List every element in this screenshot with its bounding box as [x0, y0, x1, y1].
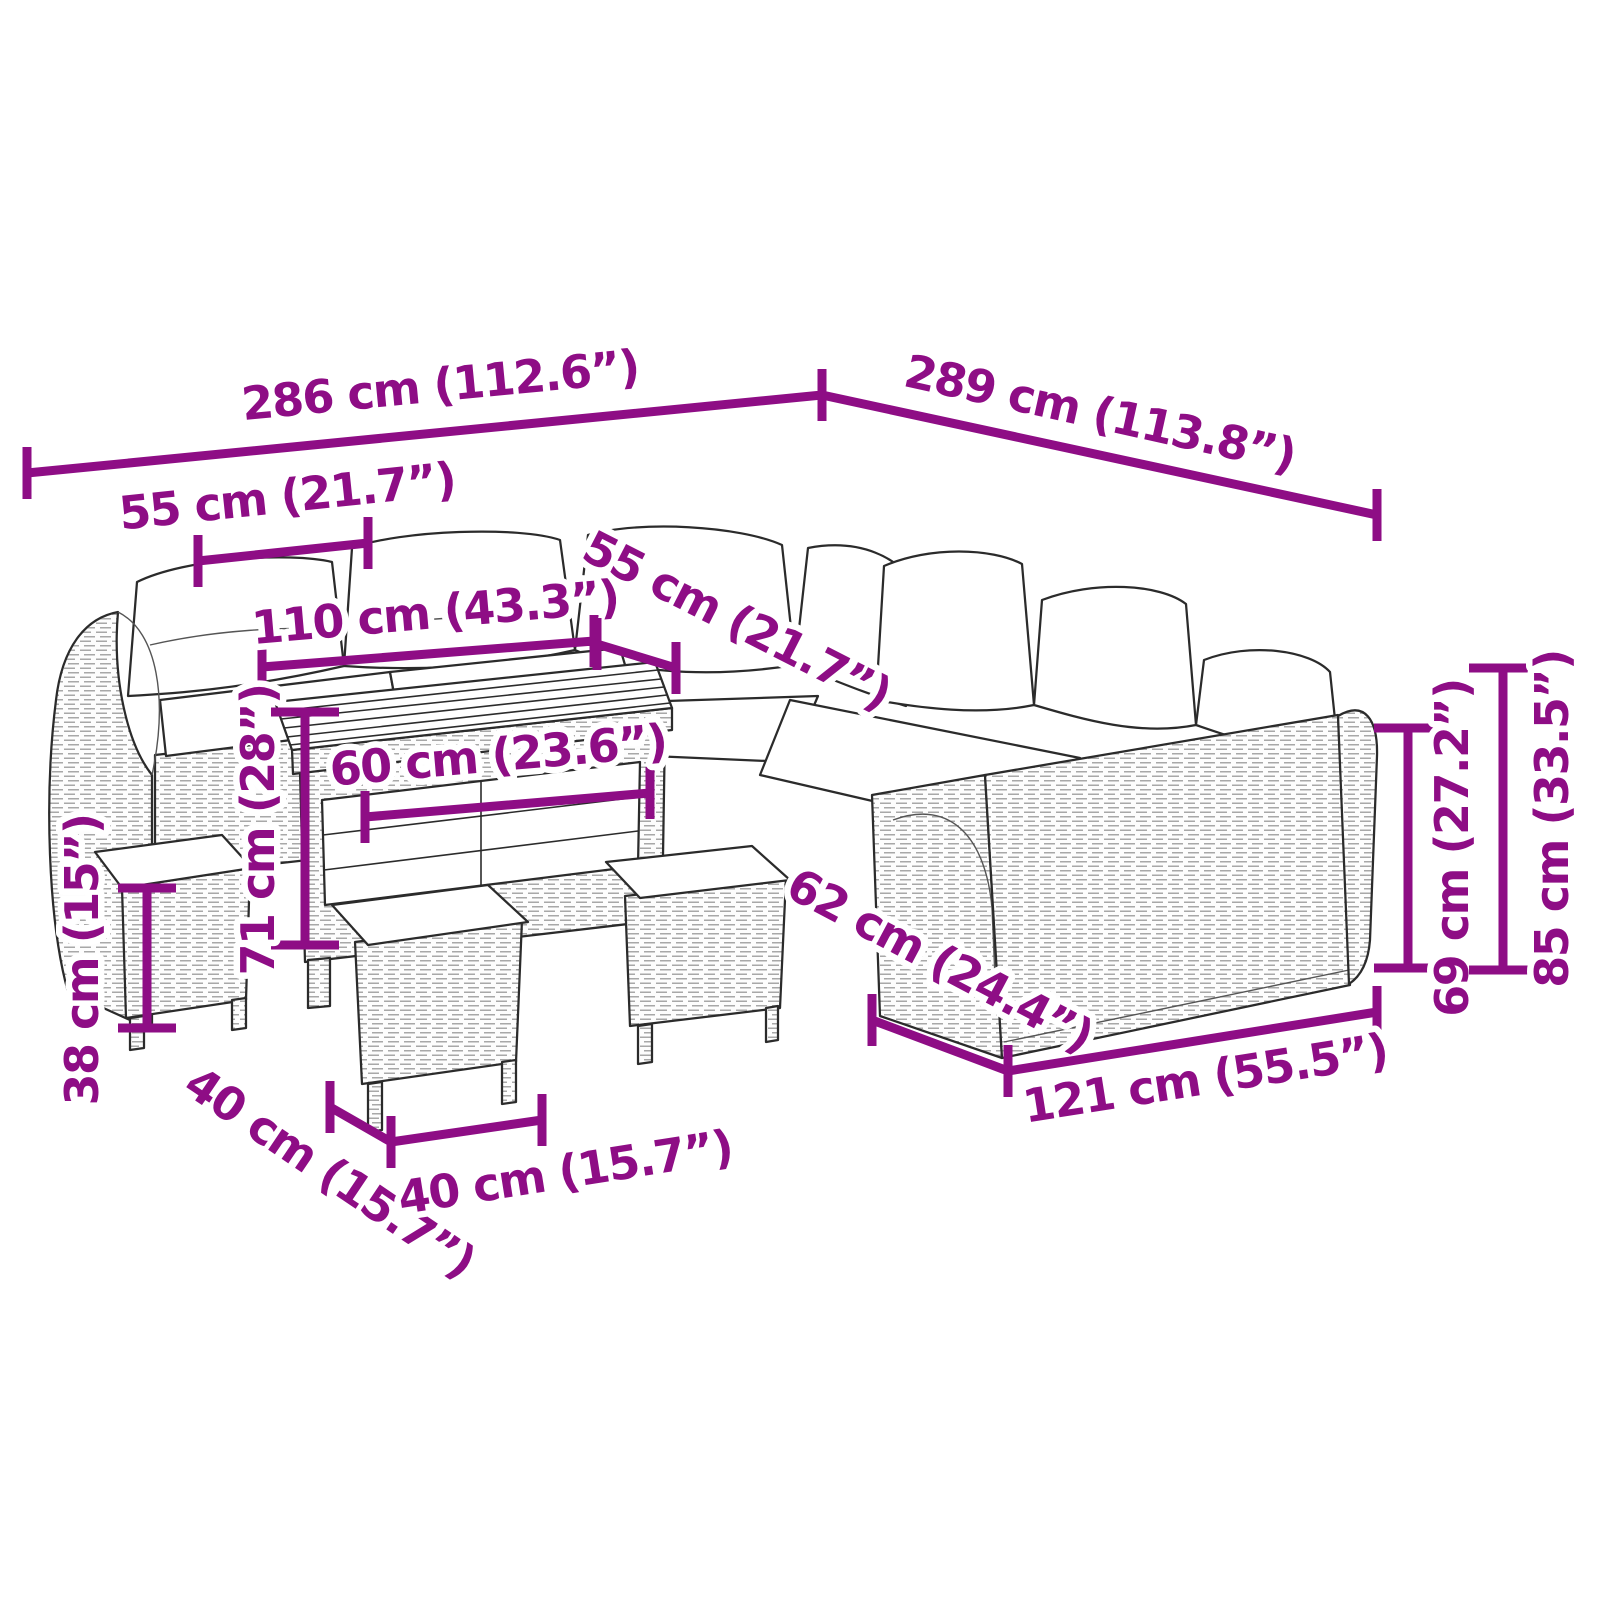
back-cushion: [1034, 587, 1196, 729]
stool-leg: [130, 1016, 144, 1050]
stool-body: [355, 920, 522, 1084]
dimension-label: 289 cm (113.8”): [900, 344, 1301, 483]
stool-leg: [502, 1060, 516, 1104]
stool-body: [625, 878, 786, 1026]
sofa-right-back-cushions: [876, 552, 1338, 751]
dimension-overall-height: 85 cm (33.5”): [1469, 650, 1579, 988]
table-leg: [308, 958, 330, 1008]
dimension-backrest-height: 69 cm (27.2”): [1374, 679, 1479, 1017]
dimension-label: 71 cm (28”): [231, 684, 285, 975]
dimension-line: [391, 1094, 542, 1146]
stool-leg: [232, 998, 246, 1030]
dimension-label: 55 cm (21.7”): [116, 452, 457, 541]
dimension-overall-width-right: 289 cm (113.8”): [822, 344, 1377, 541]
back-cushion: [876, 552, 1034, 711]
stool-leg: [368, 1082, 382, 1132]
dimension-stool-width: 40 cm (15.7”): [391, 1094, 736, 1225]
stool-center: [332, 885, 528, 1132]
dimension-diagram-page: 286 cm (112.6”) 289 cm (113.8”) 55 cm (2…: [0, 0, 1600, 1600]
stool-leg: [766, 1006, 778, 1042]
furniture-dimension-diagram: 286 cm (112.6”) 289 cm (113.8”) 55 cm (2…: [0, 0, 1600, 1600]
stool-leg: [638, 1024, 652, 1064]
dimension-label: 38 cm (15”): [55, 814, 109, 1105]
dimension-label: 85 cm (33.5”): [1525, 650, 1579, 988]
stool-right: [606, 846, 790, 1064]
